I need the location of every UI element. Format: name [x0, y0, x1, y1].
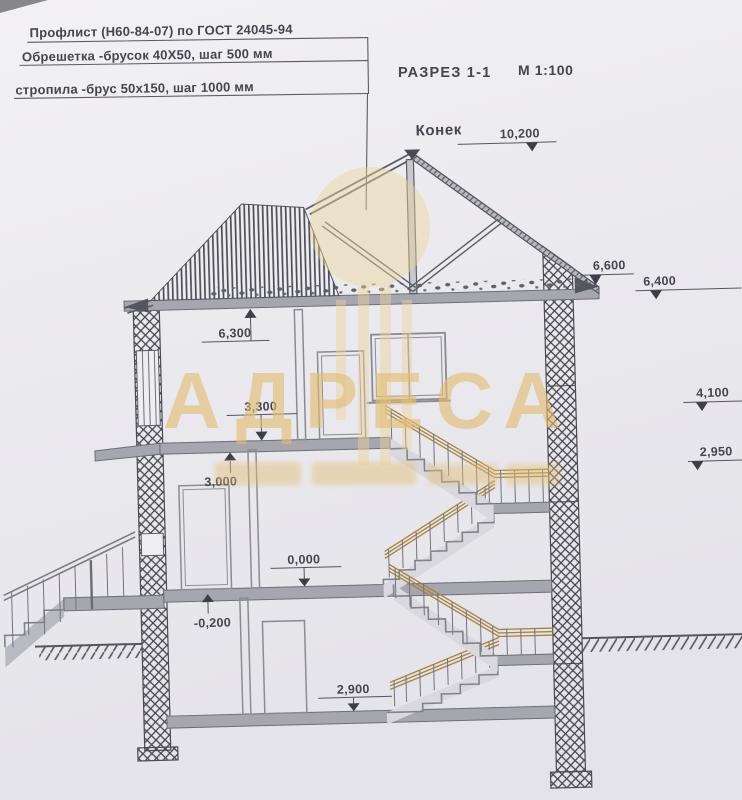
- stair-landing-lower: [493, 654, 553, 666]
- level-ridge-value: 10,200: [500, 126, 540, 141]
- porch-post: [91, 560, 92, 609]
- scale-label: М 1:100: [518, 62, 574, 78]
- level-eave-inner-value: 6,600: [593, 258, 626, 273]
- porch-landing: [64, 595, 164, 611]
- level-right-upper-value: 4,100: [696, 385, 729, 400]
- right-footing: [550, 771, 591, 788]
- section-drawing: Профлист (Н60-84-07) по ГОСТ 24045-94 Об…: [0, 0, 742, 800]
- watermark-logo-circle: [310, 167, 430, 287]
- left-footing: [138, 747, 178, 761]
- level-right-lower-value: 2,950: [700, 444, 733, 459]
- level-attic-floor-value: 6,300: [218, 326, 251, 341]
- ridge-label: Конек: [415, 121, 462, 139]
- stair-landing-upper: [489, 502, 549, 514]
- level-entrance-value: -0,200: [194, 615, 232, 630]
- photographed-blueprint: Профлист (Н60-84-07) по ГОСТ 24045-94 Об…: [0, 0, 742, 800]
- watermark-subline: [215, 462, 560, 485]
- level-eave-outer-value: 6,400: [643, 274, 676, 289]
- level-basement-value: 2,900: [337, 682, 370, 697]
- watermark-text: АДРЕСА: [163, 356, 573, 445]
- section-title: РАЗРЕЗ 1-1: [398, 65, 491, 81]
- level-zero-value: 0,000: [287, 552, 320, 567]
